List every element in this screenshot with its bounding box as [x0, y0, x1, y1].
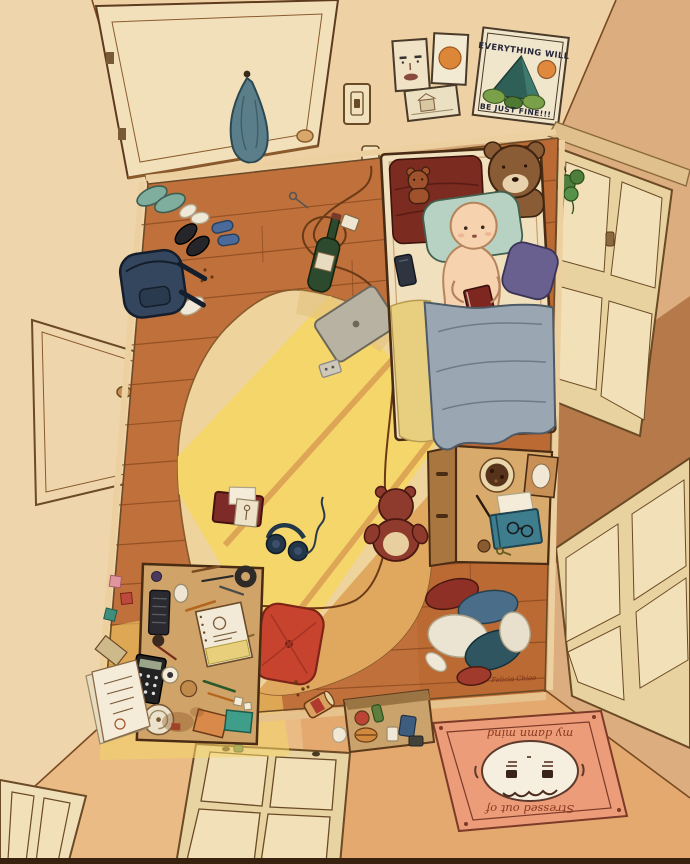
snack-blue-pack — [399, 715, 417, 737]
window-latch — [312, 752, 320, 757]
coffee-stain — [162, 712, 194, 732]
teddy-belly — [383, 532, 409, 556]
floor-cushion — [252, 601, 326, 687]
coffee-stain — [190, 707, 204, 717]
small-frame — [524, 455, 558, 498]
bed — [380, 139, 571, 452]
picture-house — [404, 85, 459, 121]
round-tin — [478, 540, 490, 552]
clay-ball — [180, 680, 197, 697]
door-hinge — [106, 52, 114, 64]
mouse — [174, 584, 189, 602]
wine-label — [314, 252, 334, 272]
teal-notebook — [225, 710, 253, 733]
nightstand — [428, 446, 558, 566]
door-hinge — [118, 128, 126, 140]
dice — [244, 702, 252, 710]
door-mat-face-and-text: Stressed out of my damn mind — [475, 727, 583, 816]
drawer-handle — [436, 514, 448, 518]
window-bottom — [176, 744, 350, 864]
picture-sun — [432, 33, 469, 85]
gray-blanket — [391, 293, 561, 452]
teal-book — [490, 509, 542, 549]
poster-everything-will-be-fine: EVERYTHING WILL BE JUST FINE!!! — [470, 27, 572, 126]
mat-text-line1: Stressed out of — [484, 802, 574, 816]
snack-red — [355, 711, 369, 725]
door-stopper — [297, 130, 313, 142]
image-bottom-strip — [0, 858, 690, 864]
drawer-handle — [436, 472, 448, 476]
crumpled-paper — [333, 727, 347, 742]
mat-text-line2: my damn mind — [487, 727, 574, 741]
picture-face — [392, 39, 429, 91]
towel-hook — [244, 71, 251, 78]
scene-svg: EVERYTHING WILL BE JUST FINE!!! — [0, 0, 690, 864]
teddy-bear-small — [407, 167, 432, 204]
snack-cup — [387, 727, 398, 741]
keyboard — [149, 590, 171, 635]
dice — [233, 697, 242, 706]
snack-dark — [409, 736, 423, 746]
window-latch — [606, 232, 614, 246]
ink-jar — [151, 571, 161, 581]
light-switch — [344, 84, 370, 124]
character-head — [449, 202, 497, 250]
door-mat-rug: Stressed out of my damn mind — [433, 711, 627, 831]
room-illustration: EVERYTHING WILL BE JUST FINE!!! — [0, 0, 690, 864]
